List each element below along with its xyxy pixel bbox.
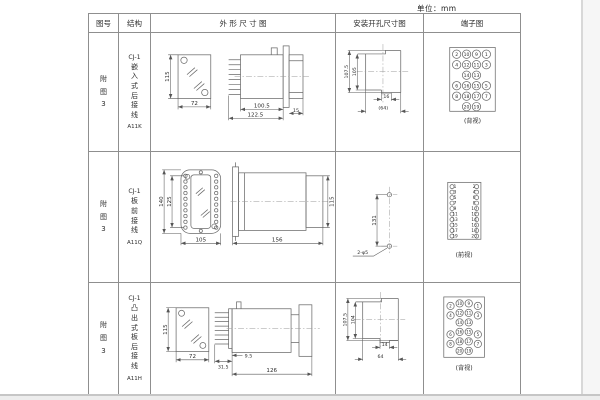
svg-text:7: 7 [454,201,457,207]
svg-text:5: 5 [454,195,457,201]
install-drawing-a11k: 107.5 105 16 (64) [336,33,423,151]
svg-text:4: 4 [449,313,452,318]
outline-cell-row1: 115 72 100.5 122.5 15 [150,32,335,151]
dim-total-length: 156 [272,237,283,243]
dim-pin-depth: 31.5 [218,365,229,371]
svg-text:19: 19 [466,348,472,353]
svg-text:16: 16 [464,83,470,89]
terminal-cell-row2: 1234567891011121314151617181920 (前视) [423,151,520,282]
svg-text:5: 5 [485,83,488,89]
structure-cell-row2: CJ-1 板前接线 A11Q [118,151,150,282]
dim-span-width: 64 [377,354,383,360]
header-install: 安装开孔尺寸图 [335,13,423,32]
model-label: CJ-1 [128,295,140,302]
dim-front-width: 72 [191,101,198,107]
dim-total-length: 122.5 [247,112,263,118]
type-code: A11H [127,376,142,382]
outline-drawing-a11q: 140 125 105 156 115 [151,152,335,282]
svg-text:15: 15 [474,83,480,89]
page-edge-right [581,0,583,400]
dim-outer-height: 107.5 [342,313,348,327]
header-figure: 图号 [88,13,118,32]
terminal-diagram-a11q: 1234567891011121314151617181920 (前视) [424,152,520,282]
svg-text:15: 15 [466,329,472,334]
front-view: 115 72 [165,55,211,110]
svg-text:15: 15 [452,223,458,229]
svg-text:9: 9 [454,206,457,212]
svg-text:2: 2 [455,52,458,58]
svg-text:14: 14 [464,73,470,79]
figure-label: 附图3 [100,319,107,358]
svg-text:8: 8 [449,341,452,346]
panel-cutout: 107.5 104 14 64 [342,292,406,361]
dim-slot-width: 14 [382,342,388,348]
svg-text:17: 17 [466,339,472,344]
dim-hole-pitch: 131 [372,215,378,226]
dim-front-height: 115 [165,71,171,82]
svg-text:10: 10 [457,301,463,306]
terminal-block: 2109141211314136161558181772019 [450,47,496,111]
header-terminal: 端子图 [423,13,520,32]
svg-text:17: 17 [474,94,480,100]
svg-text:19: 19 [452,234,458,240]
terminal-diagram-a11h: 2109141211314136161558181772019 (背视) [424,283,520,394]
drill-holes: 131 2-φ5 [353,187,397,256]
svg-text:11: 11 [474,62,480,68]
dim-front-height: 115 [163,324,169,335]
terminal-diagram-a11k: 2109141211314136161558181772019 (背视) [424,33,520,151]
hole-note: 2-φ5 [357,250,368,256]
outline-cell-row3: 115 72 9.5 31.5 126 [150,282,335,394]
svg-text:7: 7 [485,94,488,100]
dim-front-width: 105 [196,237,207,243]
dim-total-length: 126 [266,368,277,374]
svg-text:16: 16 [457,329,463,334]
dim-body-length: 100.5 [254,103,270,109]
svg-text:9: 9 [475,52,478,58]
header-structure: 结构 [118,13,150,32]
svg-text:4: 4 [455,62,458,68]
outline-cell-row2: 140 125 105 156 115 [150,151,335,282]
figure-cell-row2: 附图3 [88,151,118,282]
svg-text:17: 17 [452,228,458,234]
dim-offset: 9.5 [245,353,253,359]
svg-text:14: 14 [457,320,463,325]
svg-text:3: 3 [477,313,480,318]
header-outline: 外 形 尺 寸 图 [150,13,335,32]
svg-text:13: 13 [474,73,480,79]
side-view: 156 115 [231,162,335,245]
figure-cell-row1: 附图3 [88,32,118,151]
install-cell-row1: 107.5 105 16 (64) [335,32,423,151]
svg-text:11: 11 [452,212,458,218]
panel-cutout: 107.5 105 16 (64) [344,44,409,113]
svg-text:13: 13 [452,217,458,223]
type-code: A11K [127,124,141,130]
install-cell-row3: 107.5 104 14 64 [335,282,423,394]
svg-text:9: 9 [467,301,470,306]
terminal-block: 1234567891011121314151617181920 [448,182,481,239]
terminal-caption: (背视) [464,117,481,125]
front-view: 140 125 105 [159,170,221,245]
page-edge-bottom-area [0,396,600,400]
page-edge-right-area [583,0,600,400]
dim-span-width: (64) [378,106,388,112]
terminal-cell-row3: 2109141211314136161558181772019 (背视) [423,282,520,394]
install-cell-row2: 131 2-φ5 [335,151,423,282]
svg-text:7: 7 [477,341,480,346]
svg-text:1: 1 [477,303,480,308]
model-label: CJ-1 [128,54,140,61]
dim-outer-height: 140 [159,196,165,207]
outline-drawing-a11h: 115 72 9.5 31.5 126 [151,283,335,394]
dim-slot-width: 16 [383,94,389,100]
svg-text:18: 18 [457,339,463,344]
page-edge-bottom [0,394,600,396]
svg-text:6: 6 [449,332,452,337]
figure-label: 附图3 [100,198,107,237]
side-view: 100.5 122.5 15 [229,46,310,120]
structure-cell-row1: CJ-1 嵌入式后接线 A11K [118,32,150,151]
dim-front-width: 72 [189,354,196,360]
terminal-caption: (前视) [456,251,473,259]
install-drawing-a11q: 131 2-φ5 [336,152,423,282]
figure-cell-row3: 附图3 [88,282,118,394]
dim-inner-height: 105 [352,67,358,76]
terminal-cell-row1: 2109141211314136161558181772019 (背视) [423,32,520,151]
model-label: CJ-1 [128,188,140,195]
svg-text:20: 20 [457,348,463,353]
svg-text:10: 10 [464,52,470,58]
svg-text:1: 1 [485,52,488,58]
type-code: A11Q [127,240,142,246]
outline-drawing-a11k: 115 72 100.5 122.5 15 [151,33,335,151]
dim-inner-height: 104 [350,315,356,324]
structure-label: 板前接线 [131,197,138,236]
dim-outer-height: 107.5 [344,65,350,79]
svg-text:5: 5 [477,332,480,337]
spec-table: 图号 结构 外 形 尺 寸 图 安装开孔尺寸图 端子图 附图3 CJ-1 嵌入式… [88,13,521,395]
dim-inner-height: 125 [167,196,173,207]
structure-label: 凸出式板后接线 [131,304,138,372]
svg-text:1: 1 [454,184,457,190]
install-drawing-a11h: 107.5 104 14 64 [336,283,423,394]
svg-text:12: 12 [457,310,463,315]
figure-label: 附图3 [100,73,107,112]
svg-text:8: 8 [455,94,458,100]
svg-text:19: 19 [474,104,480,110]
svg-text:13: 13 [466,320,472,325]
svg-text:18: 18 [464,94,470,100]
svg-text:6: 6 [455,83,458,89]
svg-text:3: 3 [485,62,488,68]
structure-cell-row3: CJ-1 凸出式板后接线 A11H [118,282,150,394]
svg-text:11: 11 [466,310,472,315]
svg-text:12: 12 [464,62,470,68]
svg-text:3: 3 [454,190,457,196]
structure-label: 嵌入式后接线 [131,63,138,121]
side-view: 9.5 31.5 126 [215,302,320,376]
svg-text:20: 20 [464,104,470,110]
terminal-caption: (背视) [456,364,473,372]
terminal-block: 2109141211314136161558181772019 [444,297,485,357]
front-view: 115 72 [163,308,209,363]
dim-bezel: 15 [293,108,299,114]
svg-text:2: 2 [449,303,452,308]
